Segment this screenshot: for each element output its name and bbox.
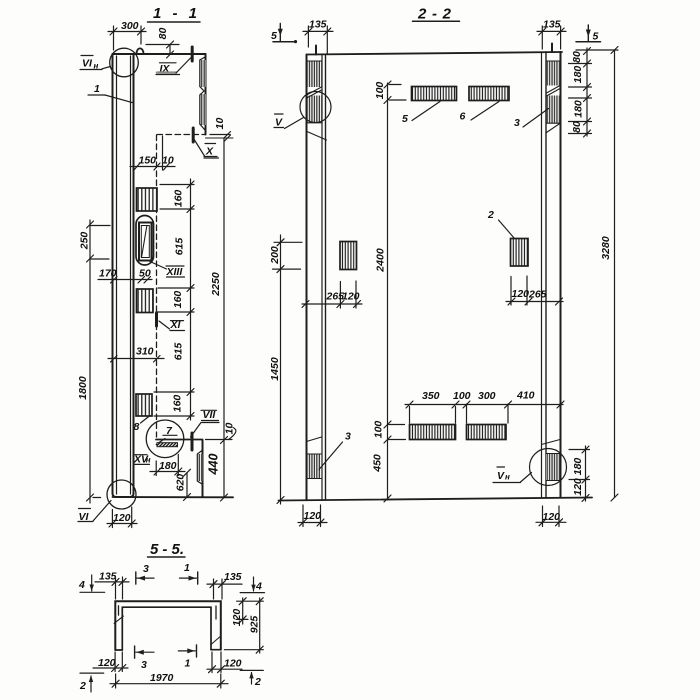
svg-text:VI: VI xyxy=(82,58,93,70)
svg-text:615: 615 xyxy=(173,343,185,361)
svg-text:3: 3 xyxy=(345,431,351,443)
svg-text:120: 120 xyxy=(342,291,360,303)
svg-text:135: 135 xyxy=(99,571,117,583)
svg-text:120: 120 xyxy=(224,658,242,670)
svg-text:V: V xyxy=(497,470,505,482)
svg-text:180: 180 xyxy=(572,66,584,84)
svg-text:3280: 3280 xyxy=(600,236,612,260)
svg-text:1450: 1450 xyxy=(269,357,281,381)
svg-text:160: 160 xyxy=(172,291,184,309)
svg-text:120: 120 xyxy=(572,478,584,496)
svg-text:2400: 2400 xyxy=(375,248,387,273)
svg-text:XIII: XIII xyxy=(166,266,184,278)
svg-text:160: 160 xyxy=(173,190,185,208)
svg-text:200: 200 xyxy=(269,246,281,265)
svg-text:2: 2 xyxy=(487,209,494,221)
svg-text:440: 440 xyxy=(207,454,221,476)
svg-text:2: 2 xyxy=(79,680,86,692)
svg-text:4: 4 xyxy=(255,581,262,593)
svg-text:V: V xyxy=(275,117,283,129)
svg-text:615: 615 xyxy=(174,238,186,256)
svg-text:6: 6 xyxy=(460,111,466,123)
svg-text:100: 100 xyxy=(453,390,471,402)
svg-text:2: 2 xyxy=(254,676,261,688)
svg-text:100: 100 xyxy=(374,82,386,100)
svg-text:5: 5 xyxy=(593,31,599,43)
svg-text:1: 1 xyxy=(185,658,191,670)
svg-text:180: 180 xyxy=(573,100,585,118)
svg-text:135: 135 xyxy=(224,571,242,583)
svg-text:170: 170 xyxy=(99,268,117,280)
svg-text:4: 4 xyxy=(78,579,85,591)
svg-text:1970: 1970 xyxy=(150,672,174,684)
svg-text:1: 1 xyxy=(94,83,100,95)
svg-text:100: 100 xyxy=(373,421,385,439)
svg-text:10: 10 xyxy=(214,118,226,130)
svg-text:1: 1 xyxy=(184,562,190,574)
svg-text:180: 180 xyxy=(572,458,584,476)
svg-text:925: 925 xyxy=(249,616,261,634)
svg-text:310: 310 xyxy=(136,346,154,358)
svg-text:300: 300 xyxy=(478,390,496,402)
svg-text:350: 350 xyxy=(422,390,440,402)
svg-text:120: 120 xyxy=(304,510,322,522)
svg-text:300: 300 xyxy=(121,20,139,32)
svg-text:5: 5 xyxy=(271,30,277,42)
svg-text:120: 120 xyxy=(543,511,561,523)
svg-text:120: 120 xyxy=(98,657,116,669)
svg-text:2250: 2250 xyxy=(210,272,222,297)
svg-text:620: 620 xyxy=(175,474,187,492)
svg-text:3: 3 xyxy=(514,117,520,129)
svg-text:80: 80 xyxy=(157,28,169,40)
svg-text:н: н xyxy=(505,473,510,482)
svg-text:120: 120 xyxy=(113,512,131,524)
svg-text:150: 150 xyxy=(139,155,157,167)
svg-text:5 - 5.: 5 - 5. xyxy=(150,541,184,558)
svg-text:2 - 2: 2 - 2 xyxy=(417,6,452,23)
svg-text:3: 3 xyxy=(143,563,149,575)
svg-text:н: н xyxy=(146,456,151,465)
svg-text:8: 8 xyxy=(134,421,140,433)
svg-text:160: 160 xyxy=(172,395,184,413)
svg-text:1800: 1800 xyxy=(77,376,89,400)
svg-text:5: 5 xyxy=(402,113,408,125)
svg-text:450: 450 xyxy=(372,454,384,473)
svg-text:120: 120 xyxy=(231,609,243,627)
svg-text:1 - 1: 1 - 1 xyxy=(153,5,197,22)
svg-text:X: X xyxy=(205,146,214,158)
svg-text:80: 80 xyxy=(571,121,583,133)
svg-text:410: 410 xyxy=(516,390,535,402)
svg-text:180: 180 xyxy=(159,460,177,472)
svg-text:80: 80 xyxy=(571,51,583,63)
svg-text:250: 250 xyxy=(79,232,91,251)
svg-text:3: 3 xyxy=(141,659,147,671)
